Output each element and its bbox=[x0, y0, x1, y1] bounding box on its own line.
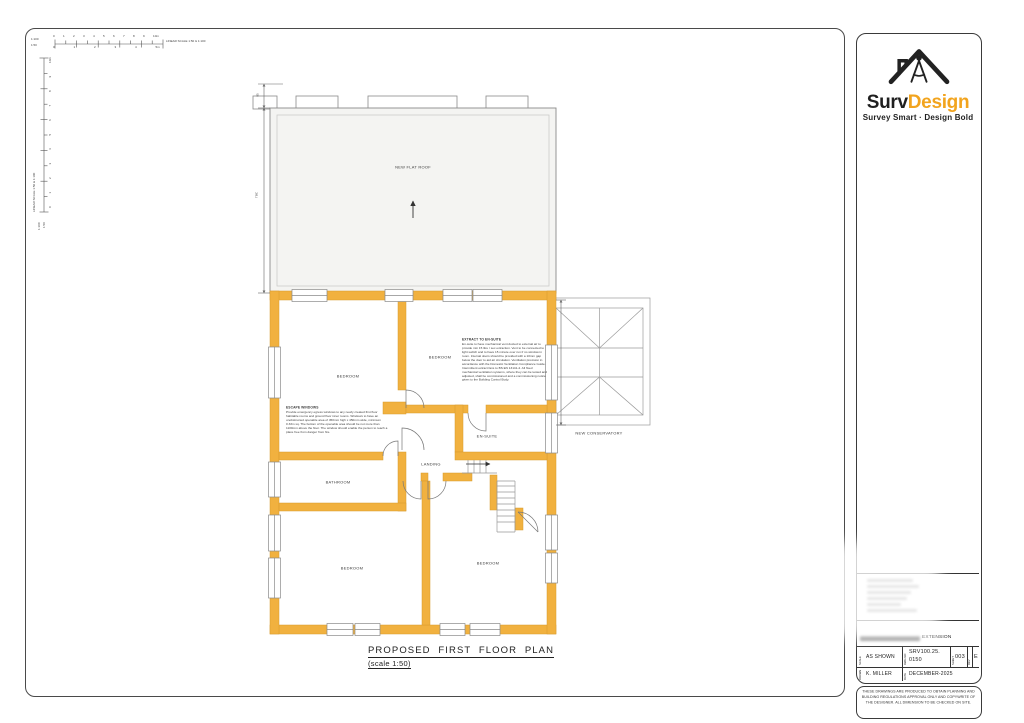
room-label-bedroom-bl: BEDROOM bbox=[341, 566, 363, 571]
note-extract-ensuite: EXTRACT TO EN-SUITE En-suite to have mec… bbox=[462, 338, 547, 382]
room-label-bedroom-tl: BEDROOM bbox=[337, 374, 359, 379]
scale-field-value: AS SHOWN bbox=[866, 654, 895, 660]
conservatory bbox=[548, 298, 650, 425]
scale-ticks-50: 0 1 2 3 4 5m bbox=[53, 46, 160, 49]
dimension-label-top: 85 bbox=[257, 93, 260, 96]
plan-scale-subtitle: (scale 1:50) bbox=[368, 659, 411, 669]
dwgno-field-value-1: SRV100.25. bbox=[909, 649, 940, 655]
titleblock-divider bbox=[857, 667, 979, 668]
note-extract-body: En-suite to have mechanical vent ducted … bbox=[462, 343, 547, 383]
room-label-landing: LANDING bbox=[421, 462, 441, 467]
stairs bbox=[462, 460, 515, 532]
flat-roof bbox=[253, 96, 556, 293]
note-escape-windows: ESCAPE WINDOWS Provide emergency egress … bbox=[286, 406, 390, 434]
roof-label: NEW FLAT ROOF bbox=[395, 165, 431, 170]
dwgno-field-value-2: 0150 bbox=[909, 657, 922, 663]
rev-field-label: REV bbox=[968, 659, 971, 665]
scale-ratio-100: 1:100 bbox=[31, 38, 39, 41]
room-label-ensuite: EN-SUITE bbox=[477, 434, 498, 439]
titleblock-divider bbox=[972, 646, 973, 667]
blur-smudge bbox=[824, 542, 940, 638]
scale-ticks-100: 0 1 2 3 4 5 6 7 8 9 10m bbox=[53, 35, 159, 38]
room-label-bathroom: BATHROOM bbox=[326, 480, 351, 485]
room-label-bedroom-tr: BEDROOM bbox=[429, 355, 451, 360]
date-field-label: DATE bbox=[904, 673, 907, 680]
dimension-label-side: TBC bbox=[256, 192, 259, 198]
drawn-field-label: DRAWN bbox=[859, 669, 862, 679]
vertical-scale-label: LINEAR SCALE 1:50 & 1:100 bbox=[33, 173, 36, 212]
dwgno-field-label: DWG NO bbox=[904, 654, 907, 665]
titleblock-divider bbox=[902, 646, 903, 681]
brand-design: Design bbox=[908, 92, 970, 113]
scale-field-label: SCALE bbox=[859, 656, 862, 665]
note-extract-heading: EXTRACT TO EN-SUITE bbox=[462, 338, 547, 342]
vertical-scale-ratio-50: 1:50 bbox=[43, 222, 46, 228]
conservatory-label: NEW CONSERVATORY bbox=[575, 431, 622, 436]
drawing-canvas: 1:100 1:50 0 1 2 3 4 5 6 7 8 9 10m 0 1 2… bbox=[0, 0, 1024, 723]
linear-scale-vertical bbox=[40, 58, 49, 212]
titleblock-divider bbox=[950, 646, 951, 667]
rev-field-value: E bbox=[974, 654, 978, 660]
plan-title: PROPOSED FIRST FLOOR PLAN bbox=[368, 645, 554, 658]
drawn-field-value: K. MILLER bbox=[866, 671, 892, 677]
survdesign-logo-icon bbox=[884, 42, 954, 90]
room-label-bedroom-br: BEDROOM bbox=[477, 561, 499, 566]
date-field-value: DECEMBER-2025 bbox=[909, 671, 953, 677]
brand-surv: Surv bbox=[867, 92, 908, 113]
note-escape-heading: ESCAPE WINDOWS bbox=[286, 406, 390, 410]
brand-tagline: Survey Smart · Design Bold bbox=[857, 113, 979, 122]
sheet-field-value: 003 bbox=[955, 654, 965, 660]
disclaimer-box: THESE DRAWINGS ARE PRODUCED TO OBTAIN PL… bbox=[856, 686, 982, 719]
linear-scale-label: LINEAR SCALE 1:50 & 1:100 bbox=[166, 40, 205, 43]
disclaimer-text: THESE DRAWINGS ARE PRODUCED TO OBTAIN PL… bbox=[859, 689, 978, 705]
note-escape-body: Provide emergency egress windows to any … bbox=[286, 411, 390, 435]
vertical-scale-ticks: 0 1 2 3 4 5 6 7 8 9 10m bbox=[49, 57, 52, 208]
scale-ratio-50: 1:50 bbox=[31, 44, 37, 47]
titleblock-divider bbox=[857, 646, 979, 647]
vertical-scale-ratio-100: 1:100 bbox=[38, 222, 41, 230]
brand-wordmark: SurvDesign bbox=[857, 92, 979, 114]
